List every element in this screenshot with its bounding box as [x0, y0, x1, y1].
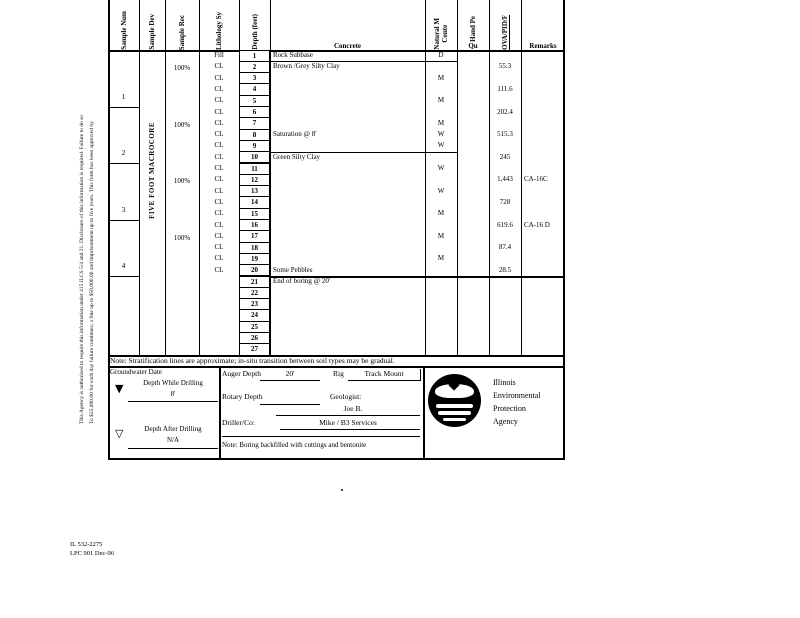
depth-after-drilling-rule	[128, 448, 218, 449]
qu-header-label: Qu	[468, 42, 477, 50]
sample-segment-divider	[108, 163, 139, 164]
depth-header-label: Depth (feet)	[251, 14, 259, 50]
lithology-cell: CL	[199, 163, 239, 174]
remark-cell: CA-16C	[521, 174, 565, 185]
moisture-cell: W	[425, 129, 457, 140]
rig-box-tick	[420, 369, 421, 381]
lithology-cell: CL	[199, 197, 239, 208]
lithology-cell: Fill	[199, 50, 239, 61]
description-cell: Saturation @ 8'	[270, 129, 425, 140]
lithology-cell: CL	[199, 242, 239, 253]
disclaimer-line-1: This Agency is authorized to require thi…	[77, 0, 87, 424]
column-header-sample-recovery: Sample Rec	[165, 0, 199, 50]
lithology-cell: CL	[199, 186, 239, 197]
moisture-cell: W	[425, 163, 457, 174]
ova-reading-cell: 87.4	[489, 242, 521, 253]
sample-number-cell: 3	[108, 204, 139, 215]
rig-label: Rig	[333, 369, 344, 379]
groundwater-title: Groundwater Date	[110, 368, 162, 377]
scanned-boring-log-page: This Agency is authorized to require thi…	[0, 0, 800, 618]
agency-name-line-1: Illinois	[493, 376, 541, 389]
ova-pid-header-label: OVA/PID/F	[501, 15, 509, 50]
logo-water-line-2	[438, 411, 471, 415]
disclaimer-line-2: To $25,000.00 for each day failure conti…	[87, 0, 97, 424]
ova-reading-cell: 28.5	[489, 265, 521, 276]
geologist-value: Joe B.	[308, 404, 398, 414]
end-of-boring-line	[270, 276, 565, 278]
sample-device-header-label: Sample Dev	[148, 14, 156, 50]
auger-depth-label: Auger Depth	[222, 369, 261, 379]
form-number: IL 532-2275 LPC 901 Dec-96	[70, 540, 114, 558]
depth-while-drilling-label: Depth While Drilling	[128, 379, 218, 388]
ova-reading-cell: 619.6	[489, 220, 521, 231]
sample-segment-divider	[108, 276, 139, 277]
description-cell: Green Silty Clay	[270, 152, 425, 163]
agency-name: Illinois Environmental Protection Agency	[493, 376, 541, 428]
ova-reading-cell: 55.3	[489, 61, 521, 72]
column-header-depth: Depth (feet)	[239, 0, 270, 50]
rig-value: Track Mount	[348, 369, 420, 379]
ova-reading-cell: 202.4	[489, 107, 521, 118]
moisture-cell: D	[425, 50, 457, 61]
sample-recovery-cell: 100%	[165, 176, 199, 187]
sample-recovery-cell: 100%	[165, 63, 199, 74]
lithology-cell: CL	[199, 265, 239, 276]
column-rule	[139, 0, 140, 355]
moisture-cell: M	[425, 231, 457, 242]
iepa-logo	[428, 374, 481, 427]
sample-recovery-cell: 100%	[165, 120, 199, 131]
moisture-cell: W	[425, 140, 457, 151]
sample-device-value: FIVE FOOT MACROCORE	[140, 55, 164, 285]
lithology-cell: CL	[199, 107, 239, 118]
ova-reading-cell: 1,443	[489, 174, 521, 185]
moisture-cell: M	[425, 208, 457, 219]
sample-number-cell: 4	[108, 260, 139, 271]
lithology-cell: CL	[199, 152, 239, 163]
agency-name-line-2: Environmental	[493, 389, 541, 402]
boring-log-form: Sample Num Sample Dev Sample Rec Litholo…	[108, 0, 565, 460]
hand-penetrometer-header-label: Hand Pe	[469, 16, 477, 42]
water-level-while-drilling-icon: ▼	[115, 383, 123, 395]
form-border-bottom	[108, 458, 565, 460]
column-header-sample-device: Sample Dev	[139, 0, 165, 50]
auger-depth-rule	[260, 380, 320, 381]
sample-recovery-cell: 100%	[165, 233, 199, 244]
lithology-cell: CL	[199, 140, 239, 151]
description-cell: Rock Subbase	[270, 50, 425, 61]
description-cell: Brown /Grey Silty Clay	[270, 61, 425, 72]
sample-recovery-header-label: Sample Rec	[178, 15, 186, 50]
groundwater-box-divider	[219, 366, 221, 460]
depth-after-drilling-value: N/A	[128, 436, 218, 445]
moisture-cell: M	[425, 95, 457, 106]
form-border-left	[108, 0, 110, 460]
ova-reading-cell: 245	[489, 152, 521, 163]
logo-water-line-3	[443, 418, 466, 421]
lithology-cell: CL	[199, 253, 239, 264]
lithology-cell: CL	[199, 95, 239, 106]
backfill-note: Note: Boring backfilled with cuttings an…	[222, 441, 366, 450]
agency-name-line-3: Protection	[493, 402, 541, 415]
remark-cell: CA-16 D	[521, 220, 565, 231]
column-header-moisture: Natural M Conte	[425, 0, 457, 56]
moisture-cell: W	[425, 186, 457, 197]
moisture-header-label: Natural M Conte	[433, 18, 449, 50]
sample-number-cell: 2	[108, 147, 139, 158]
sample-number-cell: 1	[108, 91, 139, 102]
ova-reading-cell: 111.6	[489, 84, 521, 95]
stratum-boundary-line	[270, 152, 457, 153]
agency-name-line-4: Agency	[493, 415, 541, 428]
lithology-cell: CL	[199, 61, 239, 72]
ova-reading-cell: 515.3	[489, 129, 521, 140]
lithology-cell: CL	[199, 129, 239, 140]
depth-while-drilling-value: 8'	[128, 390, 218, 399]
driller-rule	[280, 429, 420, 430]
depth-while-drilling-rule	[128, 401, 218, 402]
driller-value: Mike / B3 Services	[280, 418, 416, 428]
sample-segment-divider	[108, 107, 139, 108]
column-header-remarks: Remarks	[521, 0, 565, 62]
geologist-label: Geologist:	[330, 392, 361, 402]
column-header-hand-penetrometer: Hand Pe Qu	[457, 0, 489, 50]
drilling-box-rule	[222, 436, 420, 437]
stratum-boundary-line	[270, 61, 457, 62]
scan-artifact-dot	[341, 489, 343, 491]
moisture-cell: M	[425, 118, 457, 129]
depth-after-drilling-label: Depth After Drilling	[128, 425, 218, 434]
logo-water-line-1	[436, 404, 473, 408]
depth-cell: 27	[239, 343, 270, 355]
lithology-cell: CL	[199, 73, 239, 84]
moisture-cell: M	[425, 73, 457, 84]
lithology-cell: CL	[199, 220, 239, 231]
geologist-rule	[276, 415, 420, 416]
rotary-depth-label: Rotary Depth	[222, 392, 263, 402]
lithology-header-label: Lithology Sy	[215, 12, 223, 50]
remarks-header-label: Remarks	[529, 42, 556, 50]
surface-material-label: Concrete	[334, 42, 361, 50]
auger-depth-value: 20'	[260, 369, 320, 379]
form-number-line-1: IL 532-2275	[70, 540, 114, 549]
lithology-cell: CL	[199, 208, 239, 219]
lithology-cell: CL	[199, 84, 239, 95]
logo-box-divider	[423, 366, 425, 460]
sample-device-text: FIVE FOOT MACROCORE	[148, 122, 156, 219]
lithology-cell: CL	[199, 174, 239, 185]
column-header-sample-number: Sample Num	[108, 0, 139, 50]
description-cell: Some Pebbles	[270, 265, 425, 276]
sample-segment-divider	[108, 220, 139, 221]
stratification-note: Note: Stratification lines are approxima…	[108, 355, 565, 367]
water-level-after-drilling-icon: ▽	[115, 428, 123, 440]
moisture-cell: M	[425, 253, 457, 264]
column-header-ova-pid: OVA/PID/F	[489, 0, 521, 52]
legal-disclaimer-text: This Agency is authorized to require thi…	[77, 0, 97, 424]
form-number-line-2: LPC 901 Dec-96	[70, 549, 114, 558]
driller-label: Driller/Co:	[222, 418, 255, 428]
column-header-lithology: Lithology Sy	[199, 0, 239, 50]
ova-reading-cell: 728	[489, 197, 521, 208]
column-header-description: Concrete	[270, 0, 425, 52]
column-rule	[457, 0, 458, 355]
lithology-cell: CL	[199, 118, 239, 129]
lithology-cell: CL	[199, 231, 239, 242]
sample-number-header-label: Sample Num	[120, 11, 128, 50]
rig-rule	[348, 380, 420, 381]
